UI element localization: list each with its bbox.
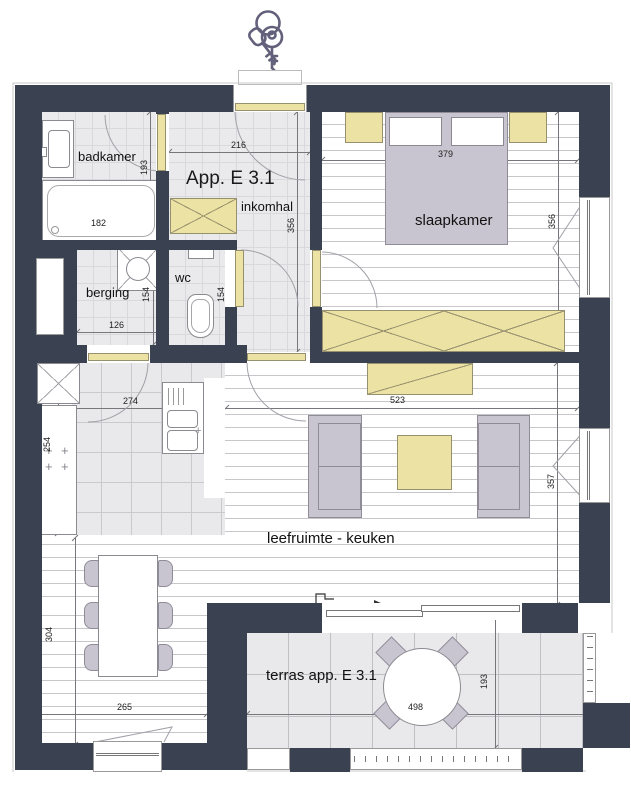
wall-railing-block-left: [290, 748, 350, 772]
kitchen-sink-2: [167, 430, 198, 451]
room-label-berging: berging: [86, 285, 129, 300]
room-label-slaapkamer: slaapkamer: [415, 212, 493, 229]
railing-bottom-ticks: [354, 756, 518, 762]
cooktop-burner-2: +: [61, 444, 69, 457]
wall-bottom-left-a: [15, 743, 93, 770]
dim-berging-width: 126: [109, 321, 124, 330]
hall-closet: [170, 198, 237, 234]
door-storage: [88, 353, 149, 361]
window-dining-glass: [96, 753, 159, 756]
dining-chair-3: [84, 644, 99, 671]
apartment-title: App. E 3.1: [186, 168, 275, 190]
wall-terrace-right-block: [583, 703, 630, 748]
window-living-right: [579, 428, 610, 503]
wall-right-top: [579, 85, 610, 197]
dim-bad-width: 182: [91, 219, 106, 228]
nightstand-right: [509, 112, 547, 143]
wall-niche-left: [36, 258, 64, 335]
wall-bedroom-bottom: [310, 352, 579, 363]
wall-terrace-top-right: [522, 603, 578, 633]
nightstand-left: [345, 112, 383, 143]
sliding-door-panel-1: [326, 610, 423, 617]
wall-top-left: [15, 85, 233, 112]
wardrobe-x-right: [444, 311, 565, 351]
window-living-glass: [587, 431, 590, 500]
railing-right-ticks: [587, 636, 593, 700]
wall-terrace-top-left: [247, 603, 322, 633]
dim-slaapkamer-depth: 356: [548, 214, 557, 229]
kitchen-faucet: +: [195, 426, 201, 437]
sofa-right-seat: [478, 423, 520, 510]
washing-machine-drum: [126, 257, 150, 281]
cooktop-burner-3: +: [45, 460, 53, 473]
wall-bath-bottom: [15, 240, 237, 250]
door-wc: [235, 250, 244, 307]
kitchen-drainer: [168, 388, 188, 405]
sideboard: [367, 363, 473, 395]
wall-step-column: [207, 603, 247, 770]
dim-werkblad-length: 254: [43, 437, 52, 452]
kitchen-counter-extension: [204, 378, 225, 498]
duct-shaft: [37, 363, 80, 404]
bathtub-inner: [47, 185, 155, 237]
room-label-badkamer: badkamer: [78, 149, 136, 164]
bathroom-sink-basin: [48, 130, 70, 168]
pillow-right: [451, 117, 504, 146]
wall-right-mid: [579, 298, 610, 428]
bathtub-drain: [51, 226, 59, 234]
floor-plan: + + + + +: [0, 0, 631, 793]
dim-terras-depth: 193: [480, 674, 489, 689]
dim-badkamer-depth: 193: [140, 160, 149, 175]
dim-leefruimte-depth: 357: [547, 474, 556, 489]
railing-bottom-left-stub: [247, 748, 290, 770]
wall-right-low: [579, 503, 610, 603]
window-bedroom-glass: [587, 200, 590, 295]
bedroom-wardrobe: [322, 310, 565, 352]
room-label-leefruimte: leefruimte - keuken: [267, 530, 395, 547]
kitchen-sink-1: [167, 410, 198, 428]
wall-hall-bedroom: [310, 112, 322, 363]
door-bedroom: [312, 250, 321, 307]
dining-chair-5: [158, 602, 173, 629]
room-label-inkomhal: inkomhal: [241, 199, 293, 214]
dining-chair-6: [158, 644, 173, 671]
pillow-left: [389, 117, 442, 146]
dim-terras-width: 498: [406, 703, 425, 712]
cooktop-burner-4: +: [61, 460, 69, 473]
door-bathroom: [157, 114, 166, 171]
dim-eethoek-depth: 304: [45, 627, 54, 642]
window-bedroom-right: [579, 197, 610, 298]
sofa-left: [308, 415, 362, 518]
coffee-table: [397, 435, 452, 490]
dim-bed-zone-width: 379: [438, 150, 453, 159]
room-label-terras: terras app. E 3.1: [266, 667, 377, 684]
dim-eethoek-width: 265: [117, 703, 132, 712]
dim-inkomhal-depth: 356: [287, 218, 296, 233]
wall-top-right: [307, 85, 610, 112]
dim-keuken-width: 274: [123, 397, 138, 406]
dining-chair-4: [158, 560, 173, 587]
wardrobe-x-left: [323, 311, 444, 351]
sofa-right: [477, 415, 530, 518]
window-dining-bottom: [93, 741, 162, 772]
wall-bottom-left-b: [162, 743, 207, 770]
wall-railing-block-right: [522, 748, 583, 772]
toilet-bowl: [191, 299, 210, 333]
sofa-left-seat: [318, 423, 361, 510]
dining-chair-1: [84, 560, 99, 587]
dim-wc-depth: 154: [217, 287, 226, 302]
door-hall-living: [247, 353, 306, 361]
dining-chair-2: [84, 602, 99, 629]
dining-table: [98, 555, 158, 677]
terrace-table: [383, 648, 461, 726]
dim-berging-depth: 154: [142, 287, 151, 302]
door-entrance: [235, 103, 305, 111]
wall-left: [15, 85, 42, 743]
dim-leefruimte-width: 523: [390, 396, 405, 405]
dim-inkomhal-width: 216: [231, 141, 246, 150]
sliding-door-panel-2: [421, 605, 520, 612]
room-label-wc: wc: [175, 270, 191, 285]
